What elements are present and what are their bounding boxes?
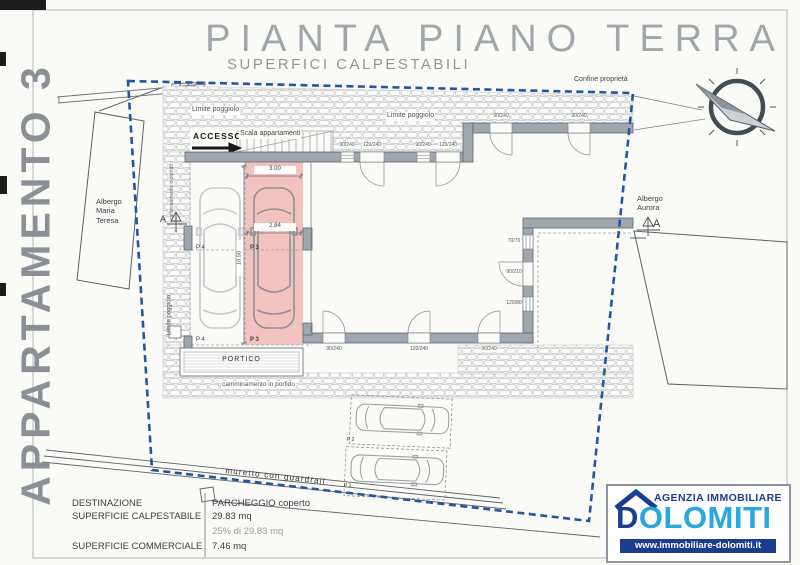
commerciale-label: SUPERFICIE COMMERCIALE xyxy=(72,541,202,552)
opening-dim: 90/240 xyxy=(415,143,431,148)
calpestabile-label: SUPERFICIE CALPESTABILE xyxy=(72,511,201,522)
opening-dim: 90/240 xyxy=(481,347,497,352)
website-link[interactable]: www.immobiliare-dolomiti.it xyxy=(620,539,776,553)
agency-logo: AGENZIA IMMOBILIARE DOLOMITI www.immobil… xyxy=(606,484,791,563)
opening-dim: 120/240 xyxy=(438,143,457,148)
scala-label: Scala appartamenti xyxy=(239,130,301,139)
building-albergo-aurora xyxy=(634,231,787,389)
scanned-floor-plan-sheet: PIANTA PIANO TERRA SUPERFICI CALPESTABIL… xyxy=(0,0,800,565)
page-subtitle: SUPERFICI CALPESTABILI xyxy=(227,56,470,75)
camminamento-label-left: camminamento in porfido xyxy=(169,150,175,234)
p3-label-bottom: P 3 xyxy=(250,337,259,345)
brand-name: DOLOMITI xyxy=(616,500,772,536)
floor-plan-canvas xyxy=(0,0,800,565)
opening-dim: 120/240 xyxy=(409,347,428,352)
limite-poggiolo-label-2: Limite poggiolo xyxy=(386,112,435,121)
camminamento-label-bottom: camminamento in porfido xyxy=(221,381,296,389)
portico-label: PORTICO xyxy=(180,356,303,365)
section-letter-right: A xyxy=(653,218,660,232)
percent-note: 25% di 29.83 mq xyxy=(212,526,283,537)
opening-dim: 90/240 xyxy=(326,347,342,352)
limite-poggiolo-label-1: Limite poggiolo xyxy=(191,106,240,115)
opening-dim: 90/240 xyxy=(339,143,355,148)
albergo-maria-teresa-label: AlbergoMariaTeresa xyxy=(96,178,122,244)
car-p2 xyxy=(356,402,450,436)
north-compass-icon xyxy=(634,68,776,146)
destinazione-value: PARCHEGGIO coperto xyxy=(212,498,310,509)
p4-label-top: P 4 xyxy=(196,245,205,253)
commerciale-value: 7.46 mq xyxy=(212,541,246,552)
apartment-side-label: APPARTAMENTO 3 xyxy=(10,4,61,564)
destinazione-label: DESTINAZIONE xyxy=(72,498,142,509)
dim-10-50: 10.50 xyxy=(237,240,244,276)
dim-2-84: 2.84 xyxy=(254,223,296,231)
section-letter-left: A xyxy=(160,214,166,225)
p2-label: P 2 xyxy=(347,437,354,443)
opening-dim: 90/240 xyxy=(571,114,587,119)
p1-label: P 1 xyxy=(344,483,351,489)
opening-dim: 90/240 xyxy=(493,114,509,119)
opening-dim: 120/80 xyxy=(506,301,522,306)
guardrail-wall xyxy=(42,450,600,537)
calpestabile-value: 29.83 mq xyxy=(212,511,252,522)
p3-label-top: P 3 xyxy=(250,245,259,253)
window-glass-lines xyxy=(341,156,530,312)
boundary-label: Confine proprietà xyxy=(574,76,628,85)
opening-dim: 70/70 xyxy=(507,239,521,244)
accesso-label: ACCESSO xyxy=(193,131,242,142)
opening-dim: 120/240 xyxy=(362,143,381,148)
dim-3-00: 3.00 xyxy=(254,166,296,174)
limite-poggiolo-label-left: Limite poggiolo xyxy=(166,280,174,350)
opening-dim: 90/210 xyxy=(506,270,522,275)
p4-label-bottom: P 4 xyxy=(196,337,205,345)
